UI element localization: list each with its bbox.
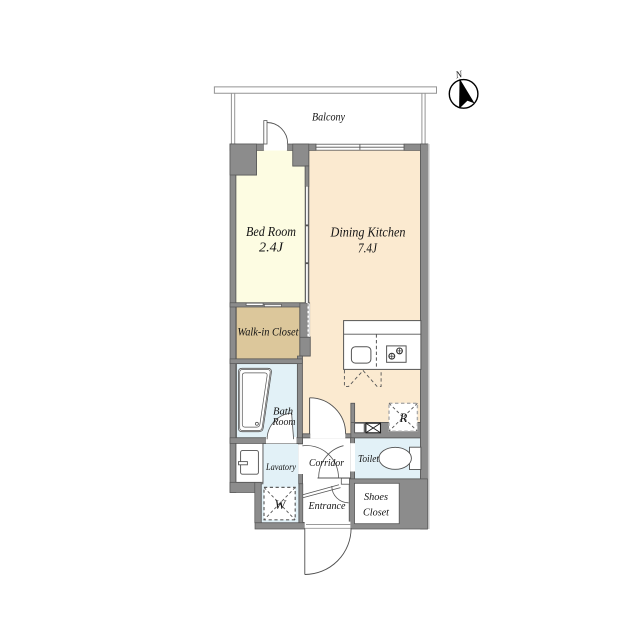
svg-text:Room: Room xyxy=(272,416,296,428)
svg-text:Balcony: Balcony xyxy=(312,112,346,124)
svg-text:Corridor: Corridor xyxy=(309,457,345,469)
svg-text:Shoes: Shoes xyxy=(364,491,388,503)
svg-text:Closet: Closet xyxy=(363,507,390,519)
svg-text:Bed Room: Bed Room xyxy=(246,224,296,239)
svg-text:2.4J: 2.4J xyxy=(259,239,284,254)
svg-text:7.4J: 7.4J xyxy=(358,241,378,256)
svg-text:Lavatory: Lavatory xyxy=(265,463,297,473)
svg-text:W: W xyxy=(275,497,287,512)
svg-text:Toilet: Toilet xyxy=(358,454,379,465)
svg-text:N: N xyxy=(454,69,465,82)
svg-text:Walk-in Closet: Walk-in Closet xyxy=(238,327,300,339)
svg-text:Dining Kitchen: Dining Kitchen xyxy=(330,225,406,240)
svg-text:R: R xyxy=(399,411,408,425)
svg-text:Entrance: Entrance xyxy=(308,500,346,512)
